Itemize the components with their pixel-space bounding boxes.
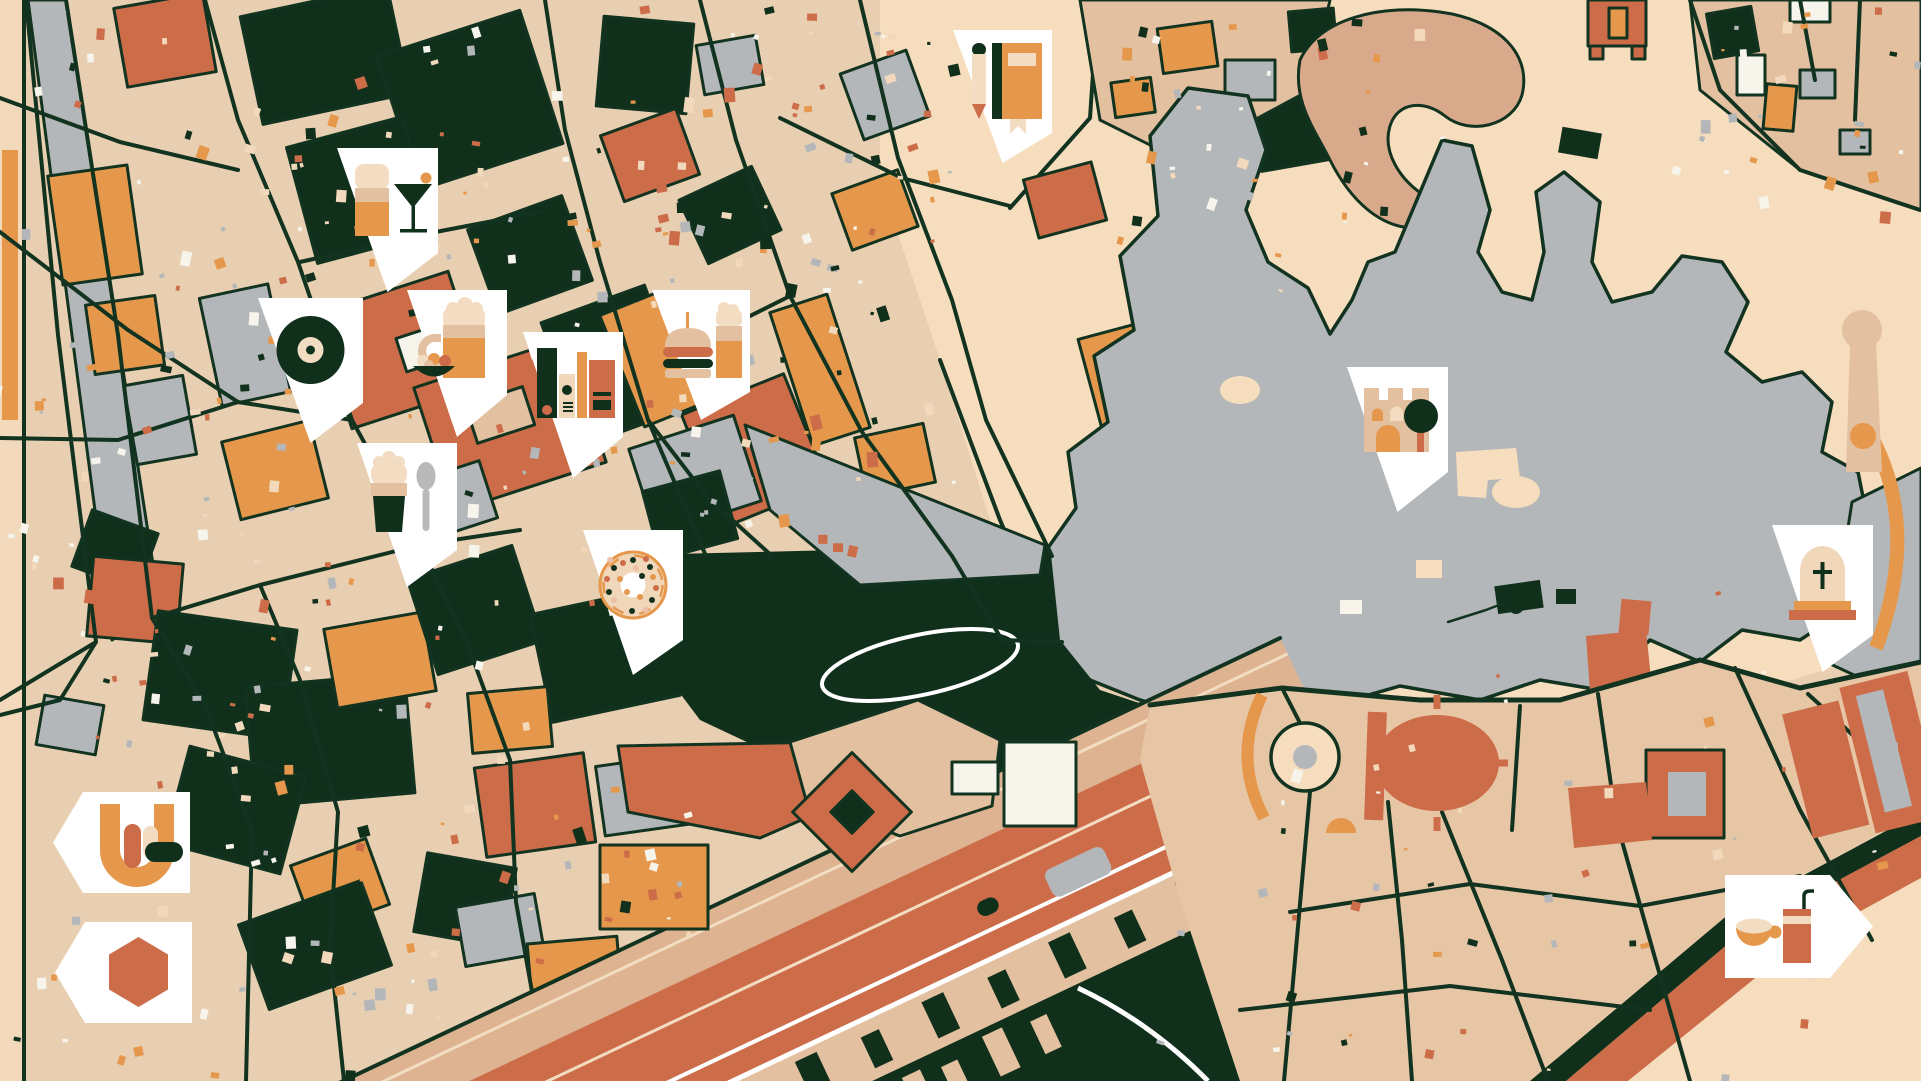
pin-castle[interactable] <box>1347 367 1448 512</box>
pin-library[interactable] <box>953 30 1052 163</box>
pin-bar[interactable] <box>337 148 438 292</box>
bullring <box>1375 715 1499 811</box>
pin-coffee[interactable] <box>357 443 457 587</box>
left-edge-strip <box>0 0 24 1081</box>
pin-record[interactable] <box>258 298 363 443</box>
pin-books[interactable] <box>523 332 623 478</box>
pin-pub[interactable] <box>407 290 507 437</box>
pin-hexagon[interactable] <box>55 922 192 1023</box>
pin-burger[interactable] <box>652 290 750 420</box>
pin-juice[interactable] <box>1725 875 1873 978</box>
sprinkle-donut-icon <box>600 552 666 618</box>
pin-rock[interactable] <box>53 792 190 893</box>
pin-donut[interactable] <box>583 530 683 675</box>
pin-cemetery[interactable] <box>1772 525 1873 672</box>
vinyl-record-icon <box>277 316 345 384</box>
illustrated-city-map <box>0 0 1921 1081</box>
castle-and-tree-icon <box>1364 388 1438 452</box>
